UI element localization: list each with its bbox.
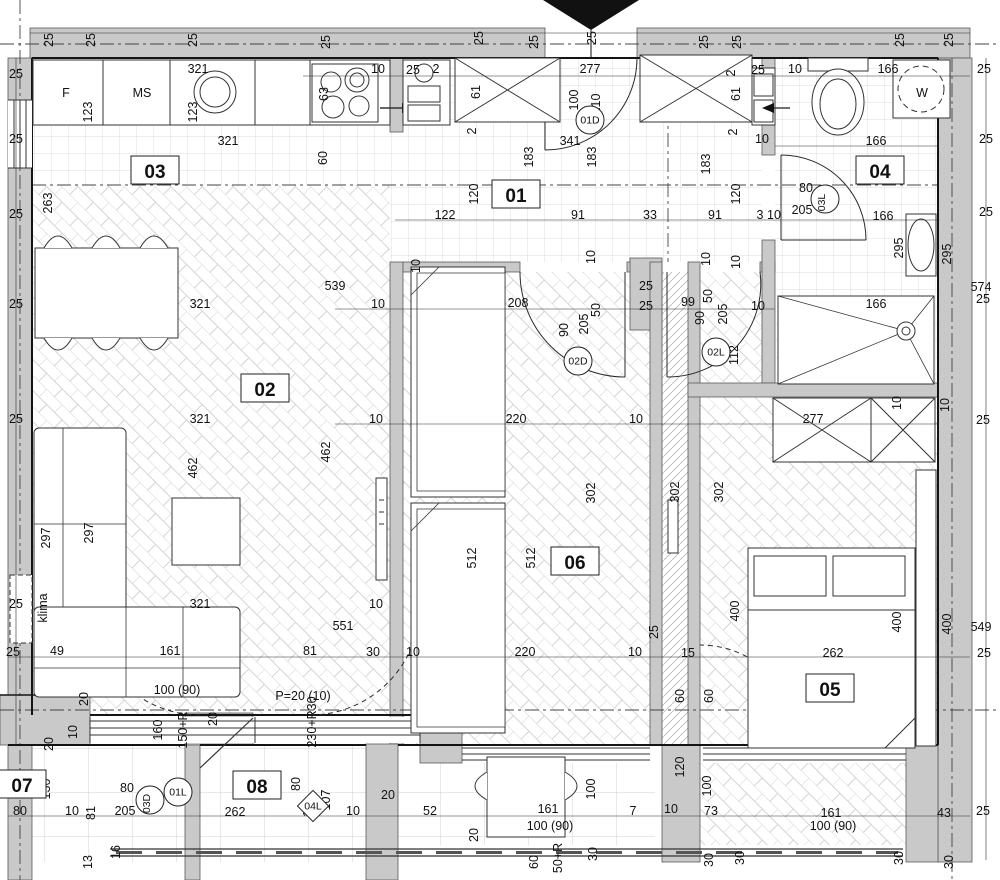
dim-label: 205 (716, 304, 730, 325)
floor-terrace-right (700, 763, 906, 845)
floor-terrace-08 (200, 745, 366, 862)
dim-label: 183 (522, 147, 536, 168)
dim-label: 25 (647, 625, 661, 639)
dining-chairs-bottom (44, 338, 168, 350)
wall-pier-terrace (366, 744, 398, 880)
dim-label: 50 (589, 303, 603, 317)
dim-label: 30 (733, 851, 747, 865)
shoe-cabinet-shelf-1 (754, 74, 773, 96)
dim-label: 539 (325, 279, 346, 293)
dim-label: 30 (702, 853, 716, 867)
dim-label: 43 (937, 806, 951, 820)
dim-label: 462 (319, 442, 333, 463)
dim-label: 25 (977, 646, 991, 660)
bed-06-b-fold (411, 503, 505, 727)
dim-label: 61 (469, 85, 483, 99)
dim-label: 13 (81, 855, 95, 869)
dim-label: 80 (120, 781, 134, 795)
dim-label: 10 (751, 299, 765, 313)
dim-label: 161 (160, 644, 181, 658)
room-number-05: 05 (819, 680, 841, 701)
kitchen-sink-inner (200, 77, 230, 107)
hall-cabinet-basin-2 (408, 105, 440, 121)
dim-label: 60 (527, 855, 541, 869)
dim-label: 10 (699, 252, 713, 266)
dim-label: 60 (673, 689, 687, 703)
dim-label: 166 (866, 297, 887, 311)
door-tag-01L: 01L (169, 787, 187, 799)
burner-2-inner (350, 73, 364, 87)
dim-label: 25 (42, 33, 56, 47)
dim-label: 123 (81, 102, 95, 123)
dim-label: 208 (508, 296, 529, 310)
dim-label: 50+R (551, 843, 565, 873)
wall-pier-right (906, 745, 938, 862)
dim-label: 230+R30 (305, 696, 319, 747)
dim-label: 25 (9, 597, 23, 611)
dim-label: 50 (701, 289, 715, 303)
wall-kitchen-stub (390, 58, 403, 132)
dim-label: 81 (84, 806, 98, 820)
dim-label: 60 (316, 151, 330, 165)
door-tag-02D: 02D (568, 356, 588, 368)
fixture-label: klima (36, 593, 50, 622)
dim-label: 2 (724, 69, 738, 76)
dim-label: 549 (971, 620, 992, 634)
dim-label: 10 (371, 62, 385, 76)
burner-4 (349, 96, 369, 116)
dim-label: 262 (823, 646, 844, 660)
room-number-06: 06 (564, 553, 585, 574)
fixture-label: P=20 (10) (275, 689, 330, 703)
dim-label: 25 (472, 31, 486, 45)
dim-label: 10 (409, 259, 423, 273)
floor-plan-page: 2525252525252525252525252525252525252634… (0, 0, 1000, 880)
dim-label: 25 (893, 33, 907, 47)
fixture-label: F (62, 86, 70, 100)
dim-label: 99 (681, 295, 695, 309)
dim-label: 61 (729, 87, 743, 101)
dim-label: 321 (188, 62, 209, 76)
room-number-07: 07 (11, 776, 32, 797)
dim-label: 63 (317, 87, 331, 101)
coffee-table (172, 498, 240, 565)
dim-label: 161 (821, 806, 842, 820)
dim-label: 551 (333, 619, 354, 633)
dim-label: 20 (42, 737, 56, 751)
dim-label: 60 (702, 689, 716, 703)
wall-top-left (30, 28, 545, 58)
dim-label: 33 (643, 208, 657, 222)
dim-label: 166 (866, 134, 887, 148)
dim-label: 25 (9, 207, 23, 221)
dim-label: 25 (976, 292, 990, 306)
dim-label: 302 (584, 483, 598, 504)
dim-label: 10 (371, 297, 385, 311)
bed-06-a-fold (411, 267, 505, 491)
dim-label: 25 (186, 33, 200, 47)
dim-label: 10 (584, 250, 598, 264)
dim-label: 100 (90) (154, 683, 201, 697)
dim-label: 20 (467, 828, 481, 842)
dim-label: 2 (433, 62, 440, 76)
dim-label: 52 (423, 804, 437, 818)
dim-label: 10 (729, 255, 743, 269)
dim-label: 80 (289, 777, 303, 791)
dim-label: 161 (538, 802, 559, 816)
dim-label: 10 (65, 804, 79, 818)
dim-label: 80 (799, 181, 813, 195)
dim-label: 10 (346, 804, 360, 818)
dim-label: 90 (693, 311, 707, 325)
dim-label: 400 (890, 612, 904, 633)
wall-bath-south (688, 383, 938, 397)
dim-label: 25 (84, 33, 98, 47)
dim-label: 25 (697, 35, 711, 49)
dim-label: 30 (892, 851, 906, 865)
dim-label: 25 (751, 63, 765, 77)
window-bedroom05-south (703, 748, 906, 760)
dim-label: 20 (77, 692, 91, 706)
dim-label: 25 (730, 35, 744, 49)
dim-label: 100 (90) (527, 819, 574, 833)
dim-label: 16 (109, 845, 123, 859)
room-number-02: 02 (254, 380, 275, 401)
dim-label: 10 (628, 645, 642, 659)
dim-label: 166 (873, 209, 894, 223)
dim-label: 25 (319, 35, 333, 49)
fixture-label: W (916, 86, 928, 100)
wall-bedroom06-east (650, 262, 662, 745)
dim-label: 122 (435, 208, 456, 222)
wall-right (938, 58, 972, 862)
dim-label: 30 (366, 645, 380, 659)
dim-label: 25 (406, 63, 420, 77)
dim-label: 263 (41, 193, 55, 214)
door-tag-02L: 02L (707, 347, 725, 359)
dim-label: 25 (639, 279, 653, 293)
dim-label: 183 (699, 154, 713, 175)
dim-label: 25 (977, 62, 991, 76)
dim-label: 100 (584, 779, 598, 800)
dim-label: 90 (557, 323, 571, 337)
wall-bedroom05-west (688, 262, 700, 760)
dim-label: 25 (976, 804, 990, 818)
bath-sink-icon (908, 219, 934, 271)
dim-label: 462 (186, 458, 200, 479)
dim-label: 10 (767, 208, 781, 222)
bed-05-pillow-2 (833, 556, 905, 596)
dim-label: 30 (586, 847, 600, 861)
dim-label: 10 (629, 412, 643, 426)
dim-label: 166 (878, 62, 899, 76)
dim-label: 512 (524, 548, 538, 569)
dim-label: 10 (369, 412, 383, 426)
dim-label: 49 (50, 644, 64, 658)
dim-label: 512 (465, 548, 479, 569)
dim-label: 297 (82, 523, 96, 544)
dim-label: 10 (369, 597, 383, 611)
dim-label: 30 (942, 855, 956, 869)
dim-label: 25 (976, 413, 990, 427)
dim-label: 2 (465, 127, 479, 134)
dim-label: 25 (9, 132, 23, 146)
dim-label: 295 (940, 244, 954, 265)
hall-cabinet-basin-1 (408, 86, 440, 102)
dim-label: 400 (728, 601, 742, 622)
dim-label: 295 (892, 238, 906, 259)
dim-label: 321 (190, 597, 211, 611)
room-number-03: 03 (144, 162, 165, 183)
dim-label: 220 (506, 412, 527, 426)
room-number-04: 04 (869, 162, 891, 183)
dim-label: 183 (585, 147, 599, 168)
floor-plan-drawing: 2525252525252525252525252525252525252634… (0, 0, 1000, 880)
dim-label: 120 (729, 184, 743, 205)
dim-label: 10 (755, 132, 769, 146)
shower-drain-inner (902, 327, 910, 335)
dim-label: 297 (39, 528, 53, 549)
dim-label: 10 (664, 802, 678, 816)
dim-label: 341 (560, 134, 581, 148)
dim-label: 100 (567, 90, 581, 111)
toilet-bowl-inner (820, 79, 856, 129)
dim-label: 302 (712, 482, 726, 503)
dim-label: 3 (757, 208, 764, 222)
entrance-marker (543, 0, 639, 58)
dim-label: 10 (890, 396, 904, 410)
wall-07-08 (185, 745, 200, 880)
dim-label: 150+R (176, 711, 190, 748)
dim-label: 262 (225, 805, 246, 819)
dim-label: 205 (115, 804, 136, 818)
door-tag-03L: 03L (816, 194, 828, 212)
dim-label: 25 (979, 205, 993, 219)
dim-label: 123 (186, 102, 200, 123)
fixture-label: MS (133, 86, 152, 100)
dim-label: 120 (673, 757, 687, 778)
dim-label: 20 (381, 788, 395, 802)
dining-chairs-top (44, 236, 168, 248)
dim-label: 25 (639, 299, 653, 313)
dim-label: 25 (9, 67, 23, 81)
dim-label: 7 (630, 804, 637, 818)
dim-label: 10 (938, 398, 952, 412)
dim-label: 20 (206, 712, 220, 726)
dim-label: 160 (151, 720, 165, 741)
door-tag-01D: 01D (580, 115, 600, 127)
door-tag-04L: 04L (304, 801, 322, 813)
dim-label: 91 (708, 208, 722, 222)
dim-label: 400 (940, 614, 954, 635)
room-number-01: 01 (505, 186, 527, 207)
dim-label: 25 (585, 31, 599, 45)
dim-label: 205 (792, 203, 813, 217)
dim-label: 25 (942, 33, 956, 47)
dim-label: 15 (681, 646, 695, 660)
tv-bedroom05-icon (668, 500, 678, 553)
dim-label: 277 (580, 62, 601, 76)
dim-label: 321 (190, 297, 211, 311)
dim-label: 10 (406, 645, 420, 659)
door-tag-03D: 03D (141, 793, 153, 813)
dim-label: 25 (527, 35, 541, 49)
dim-label: 100 (90) (810, 819, 857, 833)
room-number-08: 08 (246, 777, 267, 798)
dim-label: 80 (13, 804, 27, 818)
dim-label: 302 (668, 482, 682, 503)
entry-arrow-icon (543, 0, 639, 30)
dim-label: 10 (66, 725, 80, 739)
wall-top-right (637, 28, 970, 58)
dim-label: 100 (700, 776, 714, 797)
dim-label: 25 (6, 645, 20, 659)
tv-living-icon (376, 478, 387, 580)
dim-label: 321 (190, 412, 211, 426)
dim-label: 25 (9, 297, 23, 311)
wardrobe-05-side (916, 470, 936, 746)
dim-label: 25 (979, 132, 993, 146)
dim-label: 25 (9, 412, 23, 426)
sofa-horizontal (34, 607, 240, 697)
dining-table (35, 248, 178, 338)
dim-label: 220 (515, 645, 536, 659)
dim-label: 10 (788, 62, 802, 76)
dim-label: 321 (218, 134, 239, 148)
bed-05-pillow-1 (754, 556, 826, 596)
dim-label: 277 (803, 412, 824, 426)
dim-label: 91 (571, 208, 585, 222)
dim-label: 120 (467, 184, 481, 205)
dim-label: 81 (303, 644, 317, 658)
dim-label: 73 (704, 804, 718, 818)
dim-label: 2 (726, 128, 740, 135)
